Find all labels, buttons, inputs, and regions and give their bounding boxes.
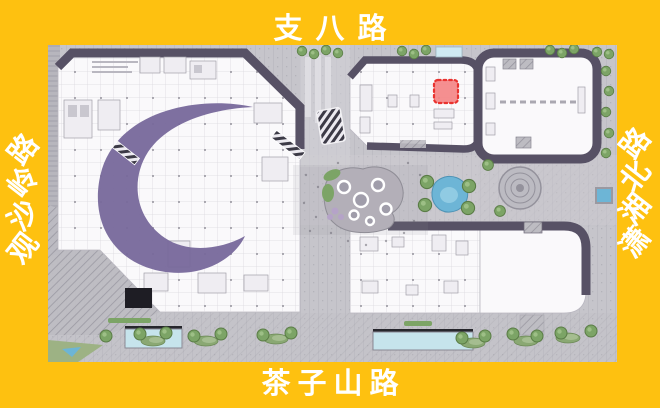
canopy-top <box>436 47 462 57</box>
road-label-south: 茶子山路 <box>0 360 660 402</box>
road-label-east: 潇湘北路 <box>614 127 658 259</box>
skylight <box>524 222 542 233</box>
central-plaza-canopy <box>322 167 403 233</box>
circular-plaza <box>499 167 541 209</box>
poster: 支八路 茶子山路 观沙岭路 潇湘北路 <box>0 0 660 408</box>
site-plan-graphic <box>48 45 617 362</box>
highlighted-unit <box>434 80 458 103</box>
building-east <box>478 53 597 159</box>
crosswalk-ramp <box>316 107 346 145</box>
building-northeast <box>350 60 480 150</box>
site-plan <box>48 45 617 362</box>
road-label-north: 支八路 <box>0 5 660 47</box>
pond-east <box>595 187 613 204</box>
entrance-dark <box>125 288 152 308</box>
road-label-west: 观沙岭路 <box>2 133 46 265</box>
